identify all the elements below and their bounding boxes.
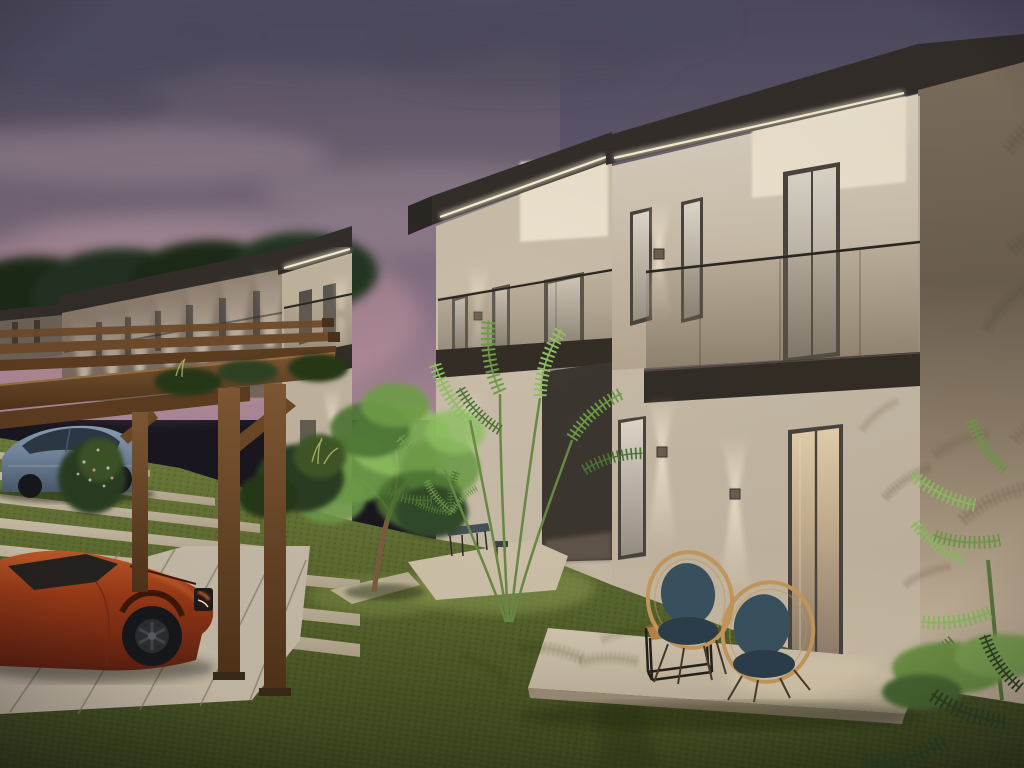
render-canvas [0,0,1024,768]
vignette [0,0,1024,768]
architectural-render [0,0,1024,768]
